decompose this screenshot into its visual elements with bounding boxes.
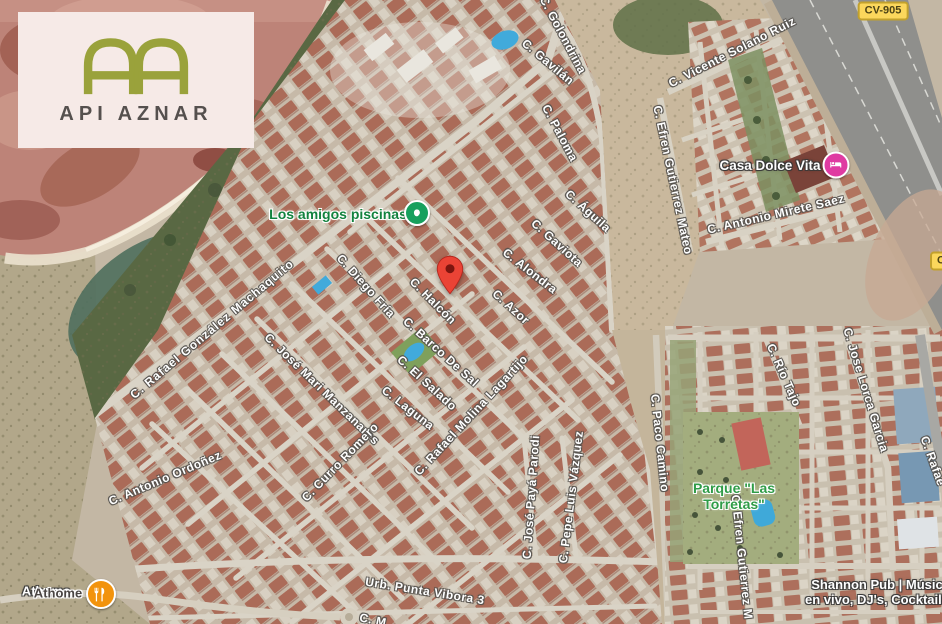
logo-monogram-aa-icon	[77, 34, 195, 96]
pool-poi-icon[interactable]	[404, 200, 430, 226]
poi-label[interactable]: Shannon Pub | Músicen vivo, DJ's, Cockta…	[805, 578, 942, 608]
restaurant-poi-icon[interactable]	[86, 579, 116, 609]
lodging-poi-icon[interactable]	[823, 152, 850, 179]
logo-card: API AZNAR	[18, 12, 254, 148]
poi-label[interactable]: Athome	[34, 587, 82, 602]
map-pin-icon	[432, 254, 468, 296]
map-canvas[interactable]: C. GolondrinaC. GavilánC. PalomaC. Águil…	[0, 0, 942, 624]
poi-label[interactable]: Casa Dolce Vita	[719, 158, 820, 174]
poi-label[interactable]: Parque "LasTorretas"	[693, 480, 775, 512]
poi-label[interactable]: Los amigos piscinas	[269, 206, 407, 222]
dropped-pin[interactable]	[432, 254, 468, 296]
logo-brand-text: API AZNAR	[59, 103, 212, 126]
